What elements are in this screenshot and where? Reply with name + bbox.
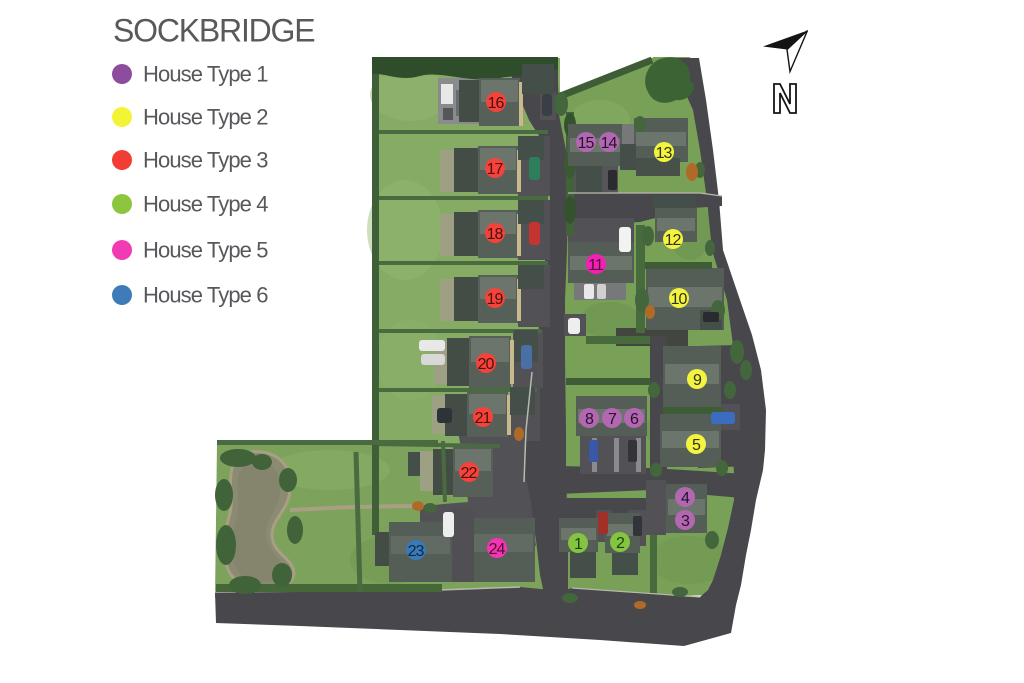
svg-text:House Type 3: House Type 3: [143, 148, 268, 173]
svg-text:SOCKBRIDGE: SOCKBRIDGE: [113, 13, 314, 49]
svg-text:1: 1: [574, 536, 583, 553]
svg-text:17: 17: [487, 161, 504, 178]
svg-text:4: 4: [681, 490, 690, 507]
svg-text:2: 2: [616, 535, 625, 552]
svg-text:5: 5: [692, 437, 701, 454]
svg-text:20: 20: [478, 356, 495, 373]
svg-text:15: 15: [578, 135, 595, 152]
svg-text:House Type 1: House Type 1: [143, 62, 268, 87]
svg-text:14: 14: [601, 135, 618, 152]
svg-text:10: 10: [671, 291, 688, 308]
svg-text:7: 7: [608, 411, 617, 428]
svg-text:18: 18: [487, 226, 504, 243]
svg-text:3: 3: [681, 513, 690, 530]
svg-text:16: 16: [488, 95, 505, 112]
svg-text:13: 13: [656, 145, 673, 162]
svg-text:21: 21: [475, 410, 492, 427]
svg-text:6: 6: [630, 411, 639, 428]
svg-text:House Type 6: House Type 6: [143, 283, 268, 308]
svg-text:24: 24: [489, 541, 506, 558]
svg-text:9: 9: [693, 372, 702, 389]
svg-text:11: 11: [588, 257, 604, 274]
svg-text:12: 12: [665, 232, 682, 249]
svg-text:House Type 2: House Type 2: [143, 105, 268, 130]
svg-text:House Type 5: House Type 5: [143, 238, 268, 263]
svg-text:23: 23: [408, 543, 425, 560]
svg-text:8: 8: [585, 411, 594, 428]
svg-text:House Type 4: House Type 4: [143, 192, 268, 217]
svg-text:22: 22: [461, 465, 478, 482]
svg-text:19: 19: [487, 291, 504, 308]
